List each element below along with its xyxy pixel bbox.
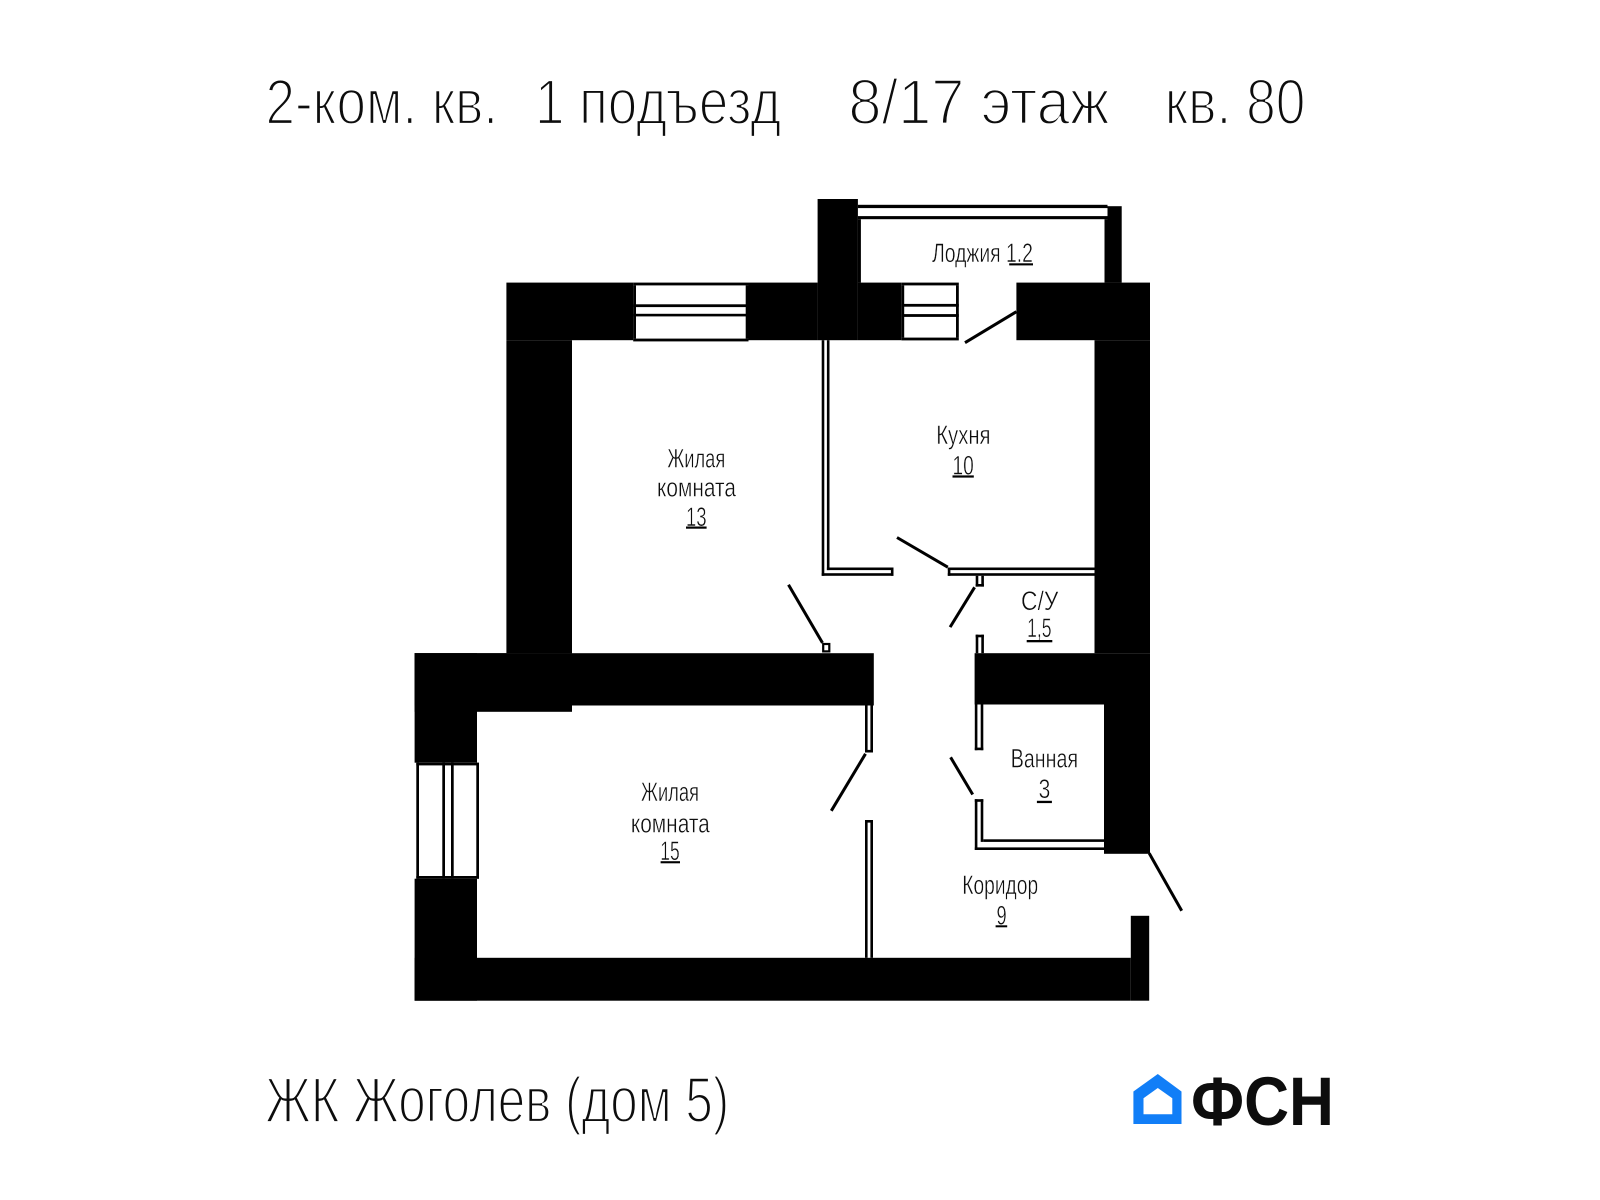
svg-text:Лоджия 1.2: Лоджия 1.2: [932, 238, 1033, 268]
svg-text:Жилая: Жилая: [641, 776, 699, 806]
svg-text:1 подъезд: 1 подъезд: [535, 67, 781, 138]
svg-text:комната: комната: [657, 473, 736, 503]
svg-text:кв. 80: кв. 80: [1165, 68, 1306, 139]
svg-text:Кухня: Кухня: [936, 420, 990, 451]
svg-text:1,5: 1,5: [1027, 612, 1051, 643]
svg-text:ФСН: ФСН: [1191, 1063, 1334, 1140]
svg-text:3: 3: [1038, 775, 1050, 805]
svg-text:8/17 этаж: 8/17 этаж: [848, 67, 1110, 138]
svg-text:2-ком. кв.: 2-ком. кв.: [266, 67, 499, 138]
svg-text:Ванная: Ванная: [1011, 745, 1078, 775]
svg-text:Жилая: Жилая: [667, 443, 725, 473]
svg-text:ЖК Жоголев (дом 5): ЖК Жоголев (дом 5): [265, 1065, 729, 1137]
svg-text:Коридор: Коридор: [962, 870, 1038, 900]
